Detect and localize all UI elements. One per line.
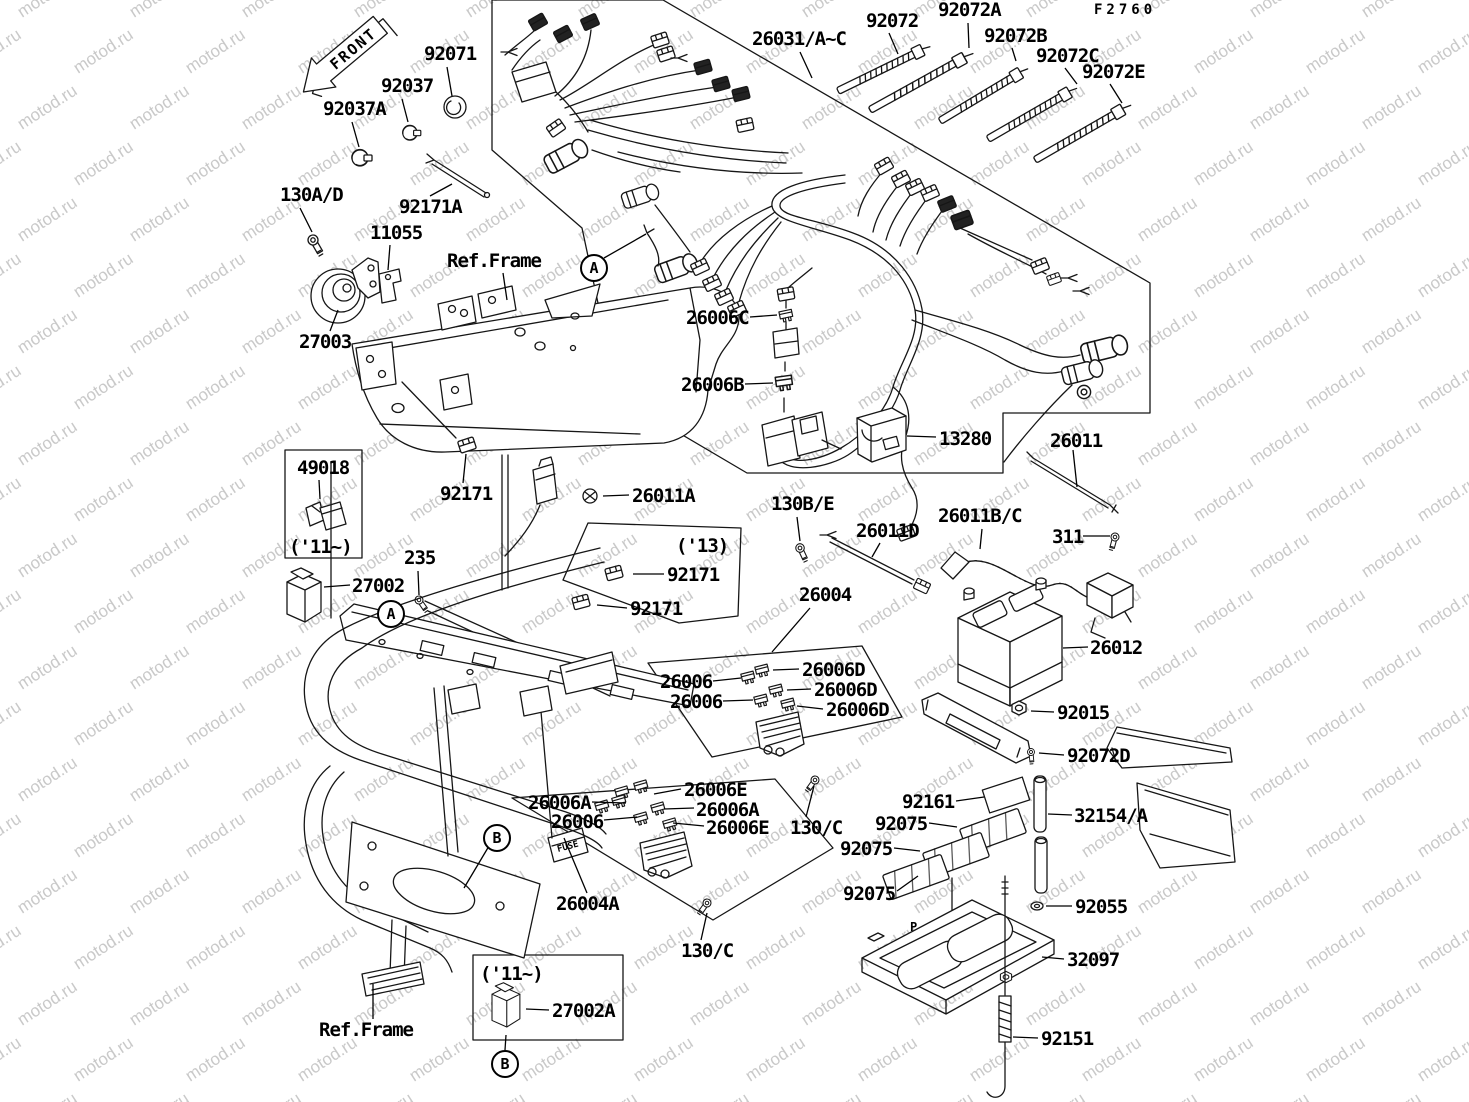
svg-text:motod.ru: motod.ru xyxy=(238,305,305,357)
svg-text:motod.ru: motod.ru xyxy=(1358,417,1425,469)
svg-text:motod.ru: motod.ru xyxy=(126,753,193,805)
svg-text:motod.ru: motod.ru xyxy=(798,977,865,1029)
svg-text:motod.ru: motod.ru xyxy=(1078,25,1145,77)
relay-27002 xyxy=(287,568,321,622)
svg-text:motod.ru: motod.ru xyxy=(742,249,809,301)
svg-text:motod.ru: motod.ru xyxy=(14,0,81,21)
svg-text:motod.ru: motod.ru xyxy=(1302,585,1369,637)
svg-text:motod.ru: motod.ru xyxy=(742,1033,809,1085)
svg-text:motod.ru: motod.ru xyxy=(1302,1033,1369,1085)
svg-text:motod.ru: motod.ru xyxy=(1022,193,1089,245)
svg-text:motod.ru: motod.ru xyxy=(1414,809,1469,861)
svg-text:motod.ru: motod.ru xyxy=(1022,1089,1089,1102)
svg-text:motod.ru: motod.ru xyxy=(0,249,24,301)
svg-text:motod.ru: motod.ru xyxy=(798,865,865,917)
svg-text:motod.ru: motod.ru xyxy=(1190,137,1257,189)
svg-text:motod.ru: motod.ru xyxy=(798,305,865,357)
svg-text:motod.ru: motod.ru xyxy=(1246,81,1313,133)
svg-text:motod.ru: motod.ru xyxy=(1414,249,1469,301)
svg-text:motod.ru: motod.ru xyxy=(574,753,641,805)
svg-text:motod.ru: motod.ru xyxy=(1302,249,1369,301)
svg-text:motod.ru: motod.ru xyxy=(238,81,305,133)
svg-text:motod.ru: motod.ru xyxy=(14,977,81,1029)
svg-text:motod.ru: motod.ru xyxy=(630,1033,697,1085)
watermark-pattern: motod.rumotod.rumotod.rumotod.rumotod.ru… xyxy=(0,0,1469,1102)
svg-text:motod.ru: motod.ru xyxy=(294,137,361,189)
clamp-92037A xyxy=(352,149,372,166)
cover-13280 xyxy=(857,408,906,462)
svg-text:motod.ru: motod.ru xyxy=(966,249,1033,301)
relay-49018 xyxy=(306,502,346,530)
svg-text:motod.ru: motod.ru xyxy=(742,473,809,525)
svg-text:motod.ru: motod.ru xyxy=(462,193,529,245)
svg-text:motod.ru: motod.ru xyxy=(1358,865,1425,917)
svg-text:motod.ru: motod.ru xyxy=(1078,809,1145,861)
svg-text:motod.ru: motod.ru xyxy=(238,1089,305,1102)
svg-text:motod.ru: motod.ru xyxy=(126,1089,193,1102)
svg-text:motod.ru: motod.ru xyxy=(126,417,193,469)
svg-text:motod.ru: motod.ru xyxy=(686,641,753,693)
svg-text:motod.ru: motod.ru xyxy=(14,193,81,245)
svg-text:motod.ru: motod.ru xyxy=(1246,641,1313,693)
svg-text:motod.ru: motod.ru xyxy=(910,529,977,581)
svg-text:motod.ru: motod.ru xyxy=(1358,305,1425,357)
svg-text:motod.ru: motod.ru xyxy=(1190,25,1257,77)
svg-text:motod.ru: motod.ru xyxy=(686,753,753,805)
connector-92171-13a xyxy=(605,565,624,581)
svg-text:motod.ru: motod.ru xyxy=(350,193,417,245)
svg-text:motod.ru: motod.ru xyxy=(294,361,361,413)
svg-text:motod.ru: motod.ru xyxy=(462,0,529,21)
svg-text:motod.ru: motod.ru xyxy=(126,81,193,133)
svg-text:motod.ru: motod.ru xyxy=(1246,865,1313,917)
svg-text:motod.ru: motod.ru xyxy=(1414,1033,1469,1085)
bolt-311 xyxy=(1103,532,1123,552)
svg-text:motod.ru: motod.ru xyxy=(1358,193,1425,245)
svg-text:motod.ru: motod.ru xyxy=(14,417,81,469)
svg-text:motod.ru: motod.ru xyxy=(1134,0,1201,21)
clamp-92037 xyxy=(403,125,421,140)
svg-text:motod.ru: motod.ru xyxy=(350,1089,417,1102)
svg-text:motod.ru: motod.ru xyxy=(686,0,753,21)
svg-text:motod.ru: motod.ru xyxy=(854,585,921,637)
svg-text:motod.ru: motod.ru xyxy=(182,921,249,973)
svg-text:motod.ru: motod.ru xyxy=(14,753,81,805)
svg-text:motod.ru: motod.ru xyxy=(1078,1033,1145,1085)
svg-text:motod.ru: motod.ru xyxy=(0,137,24,189)
svg-text:motod.ru: motod.ru xyxy=(182,473,249,525)
svg-text:motod.ru: motod.ru xyxy=(910,0,977,21)
svg-text:motod.ru: motod.ru xyxy=(1246,193,1313,245)
svg-text:motod.ru: motod.ru xyxy=(0,697,24,749)
svg-text:motod.ru: motod.ru xyxy=(1414,473,1469,525)
svg-text:motod.ru: motod.ru xyxy=(1134,417,1201,469)
pad-92161 xyxy=(982,777,1029,813)
svg-text:motod.ru: motod.ru xyxy=(294,921,361,973)
svg-text:motod.ru: motod.ru xyxy=(1022,305,1089,357)
svg-text:motod.ru: motod.ru xyxy=(238,193,305,245)
svg-text:motod.ru: motod.ru xyxy=(0,361,24,413)
svg-text:motod.ru: motod.ru xyxy=(1022,81,1089,133)
bracket-11055 xyxy=(379,269,401,303)
svg-text:motod.ru: motod.ru xyxy=(0,809,24,861)
svg-text:motod.ru: motod.ru xyxy=(126,305,193,357)
svg-text:motod.ru: motod.ru xyxy=(0,25,24,77)
svg-text:motod.ru: motod.ru xyxy=(854,1033,921,1085)
svg-text:motod.ru: motod.ru xyxy=(182,25,249,77)
svg-text:motod.ru: motod.ru xyxy=(1358,81,1425,133)
svg-text:motod.ru: motod.ru xyxy=(462,1089,529,1102)
svg-text:motod.ru: motod.ru xyxy=(350,753,417,805)
svg-text:motod.ru: motod.ru xyxy=(238,417,305,469)
svg-text:motod.ru: motod.ru xyxy=(1358,0,1425,21)
svg-text:motod.ru: motod.ru xyxy=(1022,865,1089,917)
svg-text:motod.ru: motod.ru xyxy=(798,1089,865,1102)
svg-text:motod.ru: motod.ru xyxy=(1358,977,1425,1029)
svg-text:motod.ru: motod.ru xyxy=(798,753,865,805)
svg-text:motod.ru: motod.ru xyxy=(1246,529,1313,581)
svg-text:motod.ru: motod.ru xyxy=(70,249,137,301)
svg-text:motod.ru: motod.ru xyxy=(630,585,697,637)
svg-text:motod.ru: motod.ru xyxy=(910,1089,977,1102)
svg-text:motod.ru: motod.ru xyxy=(686,977,753,1029)
svg-text:motod.ru: motod.ru xyxy=(854,473,921,525)
svg-text:motod.ru: motod.ru xyxy=(518,585,585,637)
svg-text:motod.ru: motod.ru xyxy=(1302,697,1369,749)
svg-text:motod.ru: motod.ru xyxy=(70,921,137,973)
svg-text:motod.ru: motod.ru xyxy=(630,473,697,525)
svg-text:motod.ru: motod.ru xyxy=(1246,305,1313,357)
svg-text:motod.ru: motod.ru xyxy=(798,0,865,21)
svg-text:motod.ru: motod.ru xyxy=(1022,0,1089,21)
svg-text:motod.ru: motod.ru xyxy=(1414,25,1469,77)
svg-text:motod.ru: motod.ru xyxy=(1022,977,1089,1029)
svg-text:motod.ru: motod.ru xyxy=(1190,921,1257,973)
svg-text:motod.ru: motod.ru xyxy=(406,1033,473,1085)
svg-text:motod.ru: motod.ru xyxy=(1302,361,1369,413)
svg-text:motod.ru: motod.ru xyxy=(854,809,921,861)
svg-text:motod.ru: motod.ru xyxy=(1246,417,1313,469)
svg-text:motod.ru: motod.ru xyxy=(1134,193,1201,245)
svg-text:motod.ru: motod.ru xyxy=(742,361,809,413)
svg-text:motod.ru: motod.ru xyxy=(1302,25,1369,77)
svg-text:motod.ru: motod.ru xyxy=(1190,697,1257,749)
svg-text:motod.ru: motod.ru xyxy=(1302,473,1369,525)
svg-text:motod.ru: motod.ru xyxy=(70,361,137,413)
svg-text:motod.ru: motod.ru xyxy=(238,0,305,21)
svg-text:motod.ru: motod.ru xyxy=(966,25,1033,77)
svg-text:motod.ru: motod.ru xyxy=(238,865,305,917)
svg-text:motod.ru: motod.ru xyxy=(462,529,529,581)
ring-92055 xyxy=(1031,902,1043,910)
svg-text:motod.ru: motod.ru xyxy=(910,753,977,805)
svg-text:motod.ru: motod.ru xyxy=(1246,1089,1313,1102)
svg-text:motod.ru: motod.ru xyxy=(1078,137,1145,189)
svg-text:motod.ru: motod.ru xyxy=(1134,865,1201,917)
svg-text:motod.ru: motod.ru xyxy=(350,81,417,133)
svg-text:motod.ru: motod.ru xyxy=(350,529,417,581)
svg-text:motod.ru: motod.ru xyxy=(1190,1033,1257,1085)
svg-text:motod.ru: motod.ru xyxy=(238,977,305,1029)
svg-text:motod.ru: motod.ru xyxy=(686,1089,753,1102)
svg-text:motod.ru: motod.ru xyxy=(574,977,641,1029)
svg-text:motod.ru: motod.ru xyxy=(406,249,473,301)
svg-text:motod.ru: motod.ru xyxy=(70,809,137,861)
svg-text:motod.ru: motod.ru xyxy=(406,25,473,77)
svg-text:motod.ru: motod.ru xyxy=(518,1033,585,1085)
svg-text:motod.ru: motod.ru xyxy=(630,921,697,973)
svg-text:motod.ru: motod.ru xyxy=(1302,921,1369,973)
svg-text:motod.ru: motod.ru xyxy=(70,697,137,749)
nut-92015 xyxy=(1012,701,1026,715)
svg-text:motod.ru: motod.ru xyxy=(1414,361,1469,413)
frame-top-rail xyxy=(352,284,739,452)
svg-text:motod.ru: motod.ru xyxy=(1190,361,1257,413)
svg-text:motod.ru: motod.ru xyxy=(1134,305,1201,357)
svg-text:motod.ru: motod.ru xyxy=(1302,137,1369,189)
svg-text:motod.ru: motod.ru xyxy=(294,1033,361,1085)
svg-text:motod.ru: motod.ru xyxy=(1134,81,1201,133)
svg-text:motod.ru: motod.ru xyxy=(182,361,249,413)
svg-text:motod.ru: motod.ru xyxy=(574,1089,641,1102)
svg-text:motod.ru: motod.ru xyxy=(14,529,81,581)
svg-text:motod.ru: motod.ru xyxy=(1190,585,1257,637)
svg-text:motod.ru: motod.ru xyxy=(1134,1089,1201,1102)
svg-text:motod.ru: motod.ru xyxy=(1358,753,1425,805)
svg-text:motod.ru: motod.ru xyxy=(182,249,249,301)
svg-text:motod.ru: motod.ru xyxy=(1190,473,1257,525)
svg-text:motod.ru: motod.ru xyxy=(14,641,81,693)
svg-text:motod.ru: motod.ru xyxy=(238,641,305,693)
svg-text:motod.ru: motod.ru xyxy=(126,641,193,693)
svg-text:motod.ru: motod.ru xyxy=(14,1089,81,1102)
svg-text:motod.ru: motod.ru xyxy=(574,865,641,917)
svg-text:motod.ru: motod.ru xyxy=(854,361,921,413)
battery-26012 xyxy=(958,578,1062,706)
svg-text:motod.ru: motod.ru xyxy=(182,585,249,637)
diagram-linework: motod.rumotod.rumotod.rumotod.rumotod.ru… xyxy=(0,0,1469,1102)
svg-text:motod.ru: motod.ru xyxy=(0,1033,24,1085)
svg-text:motod.ru: motod.ru xyxy=(686,529,753,581)
svg-text:motod.ru: motod.ru xyxy=(0,585,24,637)
svg-text:motod.ru: motod.ru xyxy=(910,305,977,357)
svg-text:motod.ru: motod.ru xyxy=(0,473,24,525)
svg-text:motod.ru: motod.ru xyxy=(70,137,137,189)
grommet-92071 xyxy=(444,96,466,118)
svg-text:motod.ru: motod.ru xyxy=(126,977,193,1029)
svg-text:motod.ru: motod.ru xyxy=(182,137,249,189)
svg-text:motod.ru: motod.ru xyxy=(0,921,24,973)
rod-32154 xyxy=(1034,776,1047,893)
svg-text:motod.ru: motod.ru xyxy=(126,529,193,581)
bolt-130AD xyxy=(305,234,327,257)
svg-text:motod.ru: motod.ru xyxy=(798,81,865,133)
svg-text:motod.ru: motod.ru xyxy=(182,1033,249,1085)
svg-text:motod.ru: motod.ru xyxy=(1078,473,1145,525)
svg-text:motod.ru: motod.ru xyxy=(1414,137,1469,189)
svg-text:motod.ru: motod.ru xyxy=(1414,921,1469,973)
svg-text:motod.ru: motod.ru xyxy=(126,0,193,21)
svg-text:motod.ru: motod.ru xyxy=(70,1033,137,1085)
svg-text:motod.ru: motod.ru xyxy=(406,473,473,525)
svg-text:motod.ru: motod.ru xyxy=(854,697,921,749)
svg-text:motod.ru: motod.ru xyxy=(1358,641,1425,693)
svg-text:motod.ru: motod.ru xyxy=(126,865,193,917)
svg-text:motod.ru: motod.ru xyxy=(70,25,137,77)
svg-text:motod.ru: motod.ru xyxy=(1078,921,1145,973)
svg-text:motod.ru: motod.ru xyxy=(1302,809,1369,861)
svg-text:motod.ru: motod.ru xyxy=(742,809,809,861)
svg-text:motod.ru: motod.ru xyxy=(14,865,81,917)
svg-text:motod.ru: motod.ru xyxy=(238,753,305,805)
svg-text:motod.ru: motod.ru xyxy=(1358,1089,1425,1102)
svg-text:motod.ru: motod.ru xyxy=(126,193,193,245)
fuse-panel-26004A: FUSE xyxy=(512,779,833,920)
svg-text:motod.ru: motod.ru xyxy=(1134,977,1201,1029)
svg-text:motod.ru: motod.ru xyxy=(966,473,1033,525)
svg-text:motod.ru: motod.ru xyxy=(14,305,81,357)
svg-text:motod.ru: motod.ru xyxy=(742,585,809,637)
svg-text:motod.ru: motod.ru xyxy=(1134,641,1201,693)
svg-text:motod.ru: motod.ru xyxy=(70,585,137,637)
svg-text:motod.ru: motod.ru xyxy=(1414,697,1469,749)
svg-text:motod.ru: motod.ru xyxy=(1246,753,1313,805)
parts-diagram-canvas: motod.rumotod.rumotod.rumotod.rumotod.ru… xyxy=(0,0,1469,1102)
svg-text:motod.ru: motod.ru xyxy=(70,473,137,525)
svg-text:motod.ru: motod.ru xyxy=(182,809,249,861)
svg-text:motod.ru: motod.ru xyxy=(14,81,81,133)
svg-text:motod.ru: motod.ru xyxy=(1246,0,1313,21)
svg-text:motod.ru: motod.ru xyxy=(910,417,977,469)
svg-text:motod.ru: motod.ru xyxy=(1414,585,1469,637)
svg-text:motod.ru: motod.ru xyxy=(1190,249,1257,301)
svg-text:motod.ru: motod.ru xyxy=(630,137,697,189)
svg-text:motod.ru: motod.ru xyxy=(1246,977,1313,1029)
svg-text:motod.ru: motod.ru xyxy=(1358,529,1425,581)
svg-text:motod.ru: motod.ru xyxy=(182,697,249,749)
svg-text:motod.ru: motod.ru xyxy=(742,921,809,973)
svg-text:motod.ru: motod.ru xyxy=(1022,529,1089,581)
frame-bracket-right-2 xyxy=(1137,783,1235,868)
svg-text:motod.ru: motod.ru xyxy=(1134,529,1201,581)
